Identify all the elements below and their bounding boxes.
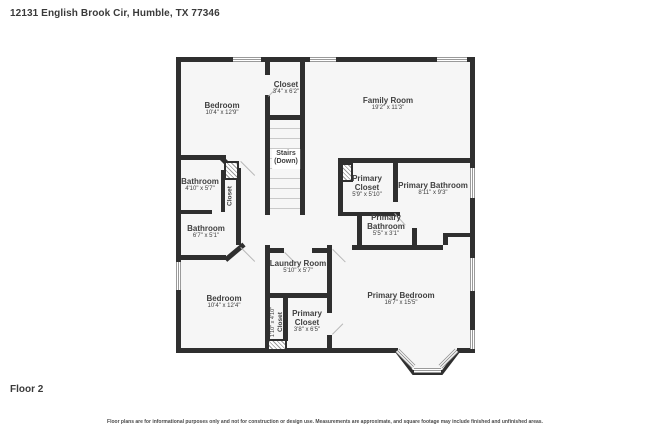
window-marker (310, 57, 336, 62)
wall (327, 335, 332, 353)
room-name: Closet (277, 307, 284, 337)
page-title: 12131 English Brook Cir, Humble, TX 7734… (10, 8, 220, 19)
room-name: Closet (226, 186, 233, 206)
room-dims: 10'4" x 12'4" (206, 303, 241, 311)
window-marker (470, 168, 475, 198)
wall (338, 158, 470, 163)
wall (470, 57, 475, 353)
room-name: Laundry Room (270, 259, 326, 268)
room-label-primary-closet-lower: Primary Closet 3'8" x 6'5" (289, 309, 325, 335)
wall (265, 115, 305, 120)
room-name: Primary Bedroom (367, 291, 434, 300)
wall (176, 348, 398, 353)
wall (265, 95, 270, 215)
room-name: Primary Closet (349, 174, 385, 192)
room-dims: 1'10" x 4'10" (270, 307, 277, 337)
window-marker (437, 57, 467, 62)
wall (357, 212, 362, 245)
room-label-closet-strip: 1'10" x 4'10" Closet (270, 307, 284, 337)
room-dims: 3'4" x 6'2" (273, 89, 299, 97)
room-dims: 4'10" x 5'7" (181, 186, 219, 194)
window-marker (470, 330, 475, 349)
room-name: Primary Bathroom (398, 181, 468, 190)
window-marker (233, 57, 261, 62)
wall (176, 255, 226, 260)
room-label-closet-upper: Closet 3'4" x 6'2" (273, 80, 299, 97)
hatch-area (224, 161, 239, 180)
room-name: Family Room (363, 96, 413, 105)
room-name: Primary Closet (289, 309, 325, 327)
room-label-bedroom-lower: Bedroom 10'4" x 12'4" (206, 294, 241, 311)
room-name: Primary Bathroom (364, 213, 408, 231)
room-label-bedroom-upper: Bedroom 10'4" x 12'9" (204, 101, 239, 118)
room-name: Bathroom (187, 224, 225, 233)
window-marker (470, 258, 475, 291)
wall (265, 293, 332, 298)
room-dims: 19'2" x 11'3" (363, 105, 413, 113)
room-label-bathroom-lower: Bathroom 6'7" x 5'1" (187, 224, 225, 241)
room-dims: 6'7" x 5'1" (187, 233, 225, 241)
wall (176, 57, 181, 353)
room-label-primary-closet-upper: Primary Closet 5'9" x 5'10" (349, 174, 385, 200)
hatch-area (267, 339, 287, 351)
room-label-primary-bathroom-small: Primary Bathroom 5'5" x 3'1" (364, 213, 408, 239)
wall (443, 233, 470, 237)
wall (300, 57, 305, 215)
wall (270, 248, 284, 253)
window-marker (414, 368, 441, 373)
floor-label: Floor 2 (10, 384, 43, 395)
room-name: Stairs (274, 150, 298, 158)
wall (327, 245, 332, 313)
room-dims: 10'4" x 12'9" (204, 110, 239, 118)
room-dims: 5'9" x 5'10" (349, 192, 385, 200)
wall (265, 57, 270, 75)
wall (352, 245, 443, 250)
room-label-primary-bedroom: Primary Bedroom 16'7" x 15'5" (367, 291, 434, 308)
room-label-laundry-room: Laundry Room 5'10" x 5'7" (270, 259, 326, 276)
room-name: Bathroom (181, 177, 219, 186)
room-dims: 5'10" x 5'7" (270, 268, 326, 276)
wall (412, 228, 417, 245)
room-label-bathroom-upper: Bathroom 4'10" x 5'7" (181, 177, 219, 194)
window-marker (176, 262, 181, 290)
room-label-family-room: Family Room 19'2" x 11'3" (363, 96, 413, 113)
room-name: Closet (273, 80, 299, 89)
room-dims: 8'11" x 9'3" (398, 190, 468, 198)
room-label-primary-bathroom-large: Primary Bathroom 8'11" x 9'3" (398, 181, 468, 198)
disclaimer-text: Floor plans are for informational purpos… (0, 419, 650, 425)
room-label-stairs: Stairs (Down) (272, 149, 300, 169)
room-dims: 16'7" x 15'5" (367, 300, 434, 308)
room-name: Bedroom (206, 294, 241, 303)
wall (176, 210, 212, 214)
room-dims: 3'8" x 6'5" (289, 327, 325, 335)
room-name: Bedroom (204, 101, 239, 110)
room-dims: (Down) (274, 158, 298, 167)
wall (236, 215, 241, 245)
room-dims: 5'5" x 3'1" (364, 231, 408, 239)
room-label-closet-hall: Closet (226, 186, 233, 206)
